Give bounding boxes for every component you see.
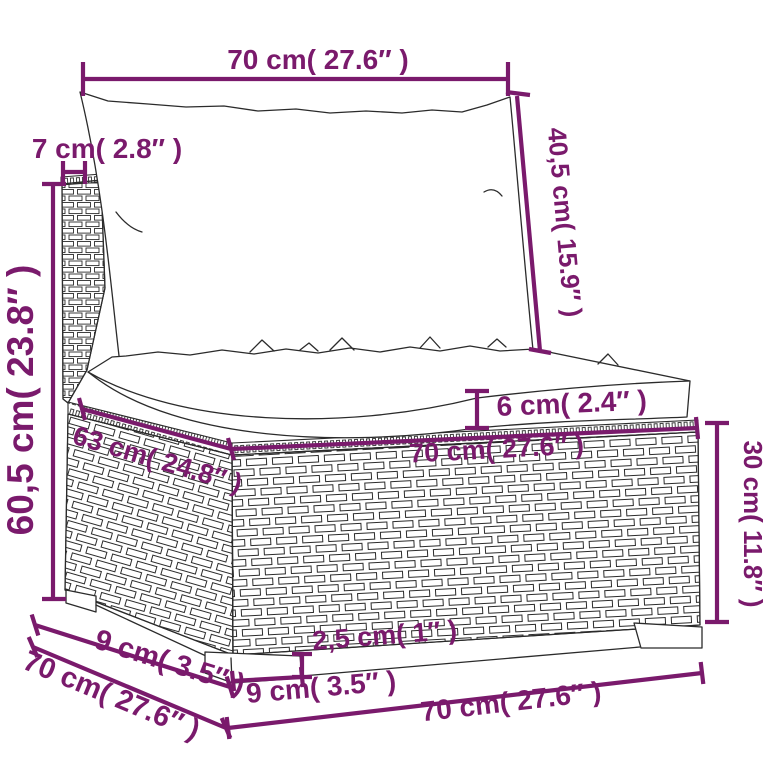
dim-back-cushion-height-label: 40,5 cm( 15.9″ ) — [542, 126, 588, 318]
product-dimension-diagram: 70 cm( 27.6″ ) 7 cm( 2.8″ ) 40,5 cm( 15.… — [0, 0, 767, 767]
dim-base-width-label: 70 cm( 27.6″ ) — [419, 676, 603, 728]
dim-back-thickness-label: 7 cm( 2.8″ ) — [32, 133, 182, 164]
dim-seat-cushion-thickness-label: 6 cm( 2.4″ ) — [496, 384, 648, 422]
dim-base-height-label: 30 cm( 11.8″ ) — [738, 440, 767, 607]
dim-top-width-label: 70 cm( 27.6″ ) — [227, 44, 409, 75]
dim-total-height-label: 60,5 cm( 23.8″ ) — [0, 265, 41, 536]
dim-total-height: 60,5 cm( 23.8″ ) — [0, 184, 66, 599]
dim-top-width: 70 cm( 27.6″ ) — [83, 44, 508, 96]
dim-base-height: 30 cm( 11.8″ ) — [705, 423, 767, 622]
page: { "diagram": { "kind": "furniture-dimens… — [0, 0, 767, 767]
front-right-leg — [634, 623, 702, 648]
